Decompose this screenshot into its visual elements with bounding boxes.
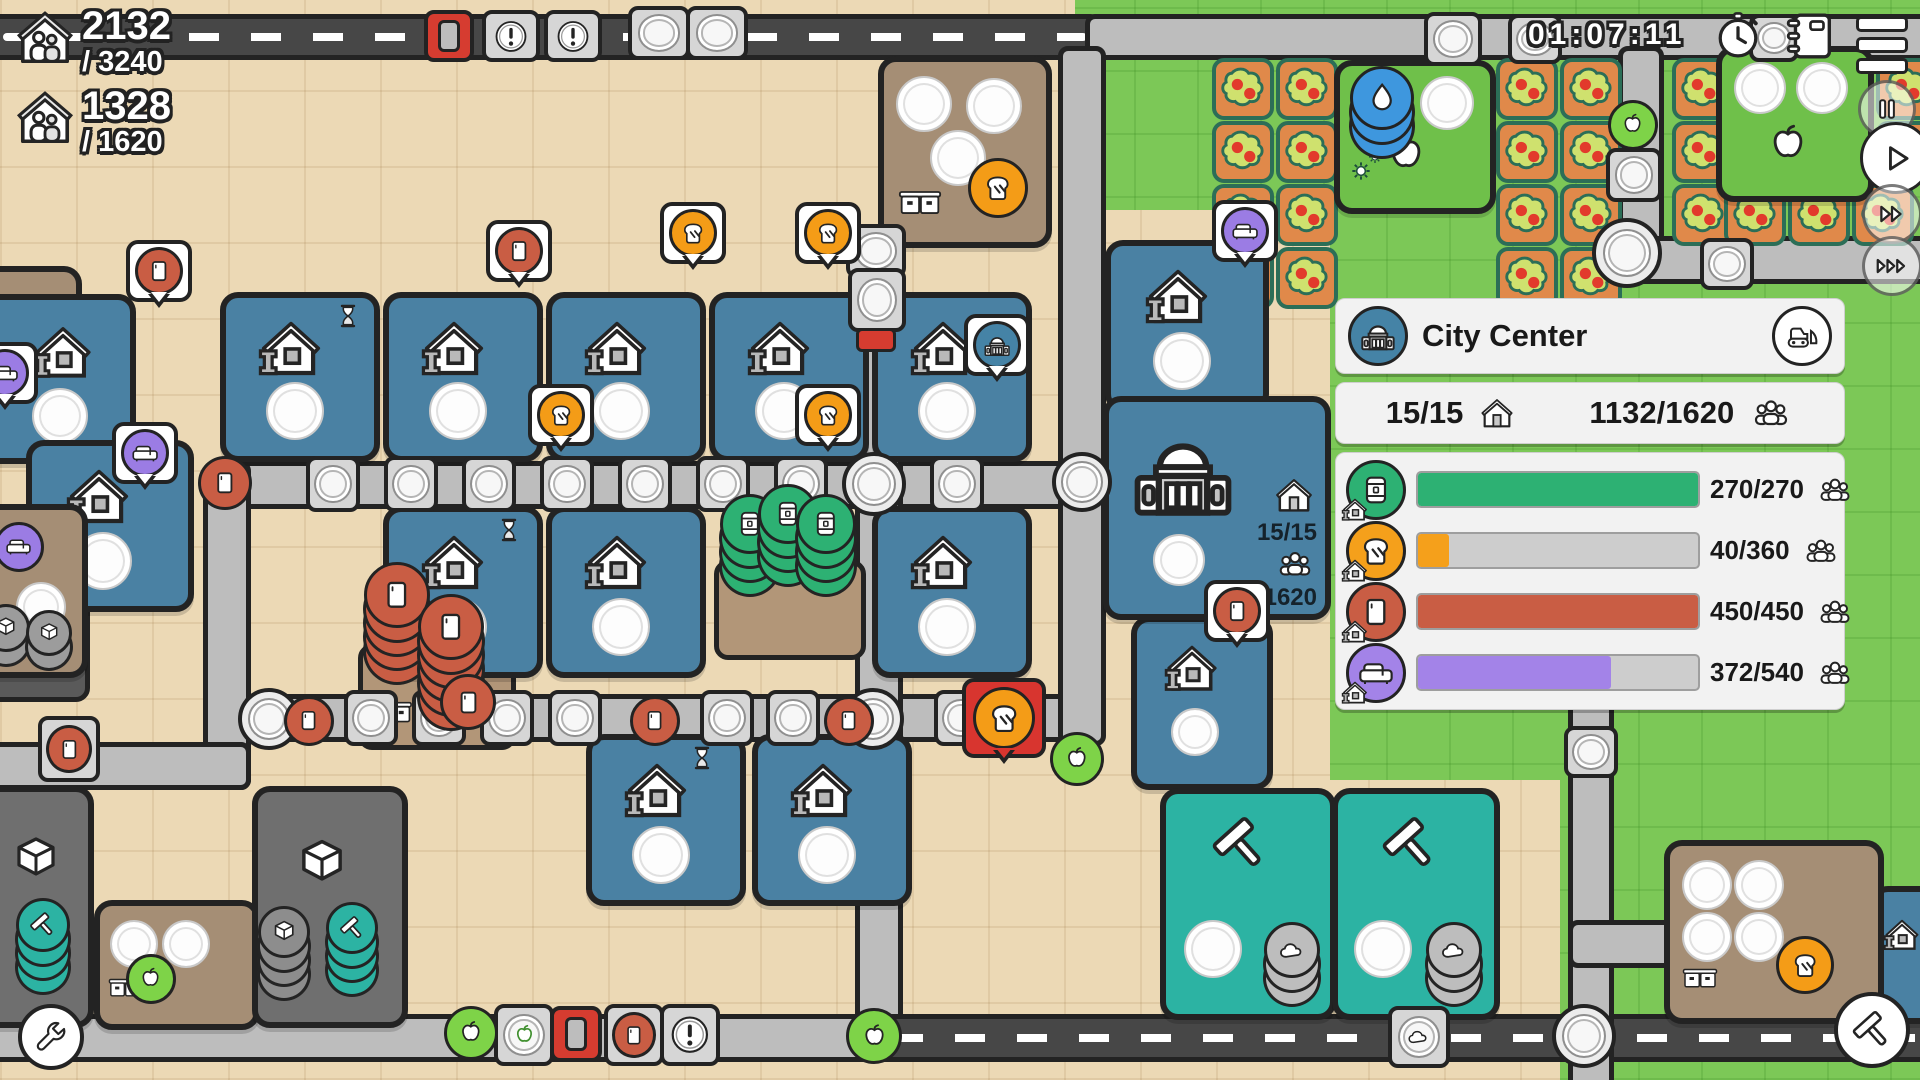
hourglass-icon xyxy=(688,740,716,776)
keg-icon xyxy=(1346,460,1406,520)
hourglass-icon xyxy=(495,512,523,548)
demand-pin-bread[interactable] xyxy=(528,384,594,446)
fast-forward-icon xyxy=(1875,197,1909,231)
hammer-marker[interactable] xyxy=(326,902,378,954)
hammer-icon xyxy=(1848,1006,1896,1054)
demand-pin-bread[interactable] xyxy=(660,202,726,264)
fastest-forward-button[interactable] xyxy=(1862,236,1920,296)
apple-icon xyxy=(1380,128,1432,180)
demolish-button[interactable] xyxy=(1772,306,1832,366)
pause-icon xyxy=(1872,94,1902,124)
population-counter: 2132 / 3240 xyxy=(14,6,171,79)
need-row-bread: 40/360 xyxy=(1346,520,1834,581)
goods-icon xyxy=(620,1021,648,1050)
demand-pin-couch[interactable] xyxy=(0,342,38,404)
house-badge-icon xyxy=(1339,554,1371,586)
need-value: 270/270 xyxy=(1710,474,1804,505)
road-node xyxy=(700,690,754,746)
road-node xyxy=(766,690,820,746)
cont-marker[interactable] xyxy=(630,696,680,746)
residence-icon xyxy=(1139,256,1217,334)
storage-pad[interactable] xyxy=(714,560,866,660)
appleg-marker[interactable] xyxy=(444,1006,498,1060)
hammer-icon xyxy=(1376,810,1444,878)
road-node xyxy=(1052,452,1112,512)
demand-pin-couch[interactable] xyxy=(1212,200,1278,262)
road-node xyxy=(628,6,690,60)
road-node xyxy=(686,6,748,60)
appleg-marker[interactable] xyxy=(1050,732,1104,786)
road-node xyxy=(306,456,360,512)
people-icon xyxy=(1748,393,1794,433)
residence-icon xyxy=(904,522,982,600)
cloud-icon xyxy=(1405,1023,1433,1051)
drop-marker[interactable] xyxy=(1350,66,1414,130)
road-node xyxy=(1592,218,1662,288)
box-marker[interactable] xyxy=(26,610,72,656)
demand-pin-cont[interactable] xyxy=(486,220,552,282)
house-icon xyxy=(1477,393,1517,433)
goods-icon xyxy=(1346,582,1406,642)
road-node xyxy=(540,456,594,512)
panel-needs: 270/270 40/360 450/450 xyxy=(1335,452,1845,710)
journal-button[interactable] xyxy=(1780,6,1838,66)
hammer-icon xyxy=(1206,810,1274,878)
demand-pin-cont[interactable] xyxy=(126,240,192,302)
box-marker[interactable] xyxy=(258,906,310,958)
apple-icon xyxy=(1762,118,1814,170)
road-node xyxy=(1564,726,1618,778)
road-node xyxy=(38,716,100,782)
housing-capacity: / 1620 xyxy=(82,126,171,159)
farm-tile[interactable] xyxy=(1212,58,1274,120)
population-house-icon xyxy=(14,6,76,70)
road-node xyxy=(618,456,672,512)
need-row-goods: 450/450 xyxy=(1346,581,1834,642)
orchard-tile[interactable] xyxy=(1716,46,1874,202)
workshop-tile[interactable] xyxy=(94,900,260,1030)
need-bar xyxy=(1416,593,1700,630)
play-icon xyxy=(1877,139,1915,177)
game-viewport: 15/15 1132/1620 xyxy=(0,0,1920,1080)
farm-tile[interactable] xyxy=(1276,184,1338,246)
house-tile[interactable] xyxy=(586,734,746,906)
residence-icon xyxy=(415,308,493,386)
cont-marker[interactable] xyxy=(198,456,252,510)
residence-icon xyxy=(618,750,696,828)
people-icon xyxy=(1273,545,1317,583)
panel-header: City Center xyxy=(1335,298,1845,374)
need-row-furniture: 372/540 xyxy=(1346,642,1834,703)
road-node xyxy=(424,10,474,62)
bakery-tile[interactable] xyxy=(1664,840,1884,1024)
appleg-marker[interactable] xyxy=(846,1008,902,1064)
road-node xyxy=(384,456,438,512)
houses-count: 15/15 xyxy=(1386,395,1464,431)
road-node xyxy=(1700,238,1754,290)
house-tile[interactable] xyxy=(546,506,706,678)
house-icon xyxy=(1271,472,1317,518)
road-node xyxy=(462,456,516,512)
farm-tile[interactable] xyxy=(1212,121,1274,183)
road-stop xyxy=(856,328,896,352)
road-node xyxy=(848,268,906,332)
builder-tile[interactable] xyxy=(1332,788,1500,1020)
need-row-drinks: 270/270 xyxy=(1346,459,1834,520)
farm-tile[interactable] xyxy=(1276,58,1338,120)
farm-tile[interactable] xyxy=(1496,184,1558,246)
need-bar xyxy=(1416,532,1700,569)
apple-icon xyxy=(511,1021,538,1049)
house-tile[interactable] xyxy=(752,734,912,906)
residence-icon xyxy=(784,750,862,828)
cloud-marker[interactable] xyxy=(1264,922,1320,978)
housing-value: 1328 xyxy=(82,86,171,126)
demand-pin-cont[interactable] xyxy=(1204,580,1270,642)
road-node xyxy=(482,10,540,62)
road-node xyxy=(344,690,398,746)
box-icon xyxy=(290,832,354,896)
farm-tile[interactable] xyxy=(1276,247,1338,309)
people-icon xyxy=(1814,655,1856,691)
road-node xyxy=(1552,1004,1616,1068)
fast-forward-button[interactable] xyxy=(1862,184,1920,244)
farm-tile[interactable] xyxy=(1276,121,1338,183)
residence-icon xyxy=(1159,634,1225,700)
demand-pin-bread[interactable] xyxy=(795,384,861,446)
housing-counter: 1328 / 1620 xyxy=(14,86,171,159)
population-capacity: / 3240 xyxy=(82,46,171,79)
menu-button[interactable] xyxy=(1856,16,1908,74)
road-node xyxy=(842,452,906,516)
people-icon xyxy=(1814,594,1856,630)
house-tile[interactable] xyxy=(383,292,543,462)
builder-tile[interactable] xyxy=(1160,788,1336,1020)
house-badge-icon xyxy=(1339,676,1371,708)
gear-icon xyxy=(1366,148,1384,166)
alert-pin-bread[interactable] xyxy=(962,678,1046,758)
bin-icon xyxy=(898,190,942,216)
bulldozer-icon xyxy=(1782,316,1822,356)
road-node xyxy=(550,1006,602,1062)
road-node xyxy=(660,1004,720,1066)
residence-icon xyxy=(1880,912,1920,956)
settings-button[interactable] xyxy=(18,1004,84,1070)
cont-marker[interactable] xyxy=(418,594,484,660)
population-count: 1132/1620 xyxy=(1589,395,1734,431)
residence-icon xyxy=(578,522,656,600)
bakery-tile[interactable] xyxy=(878,56,1052,248)
need-value: 450/450 xyxy=(1710,596,1804,627)
road xyxy=(203,461,251,790)
road-node xyxy=(604,1004,664,1066)
road-node xyxy=(1388,1006,1450,1068)
appleg-marker[interactable] xyxy=(1608,100,1658,150)
bread-marker[interactable] xyxy=(968,158,1028,218)
cont-marker[interactable] xyxy=(284,696,334,746)
city-center-panel: City Center 15/15 1132/1620 270/270 xyxy=(1335,298,1845,710)
housing-icon xyxy=(14,86,76,150)
city-center-icon xyxy=(1348,306,1408,366)
residence-icon xyxy=(252,308,330,386)
demand-pin-couch[interactable] xyxy=(112,422,178,484)
need-value: 372/540 xyxy=(1710,657,1804,688)
people-icon xyxy=(1800,533,1842,569)
house-tile[interactable] xyxy=(872,506,1032,678)
road-node xyxy=(548,690,602,746)
alert-icon xyxy=(668,1012,712,1057)
people-icon xyxy=(1814,472,1856,508)
residence-icon xyxy=(741,308,819,386)
alert-icon xyxy=(490,18,532,55)
road xyxy=(1058,46,1106,746)
residence-icon xyxy=(578,308,656,386)
cont-marker[interactable] xyxy=(440,674,496,730)
bread-icon xyxy=(1346,521,1406,581)
box-icon xyxy=(6,830,66,890)
cloud-marker[interactable] xyxy=(1426,922,1482,978)
need-bar xyxy=(1416,654,1700,691)
road-node xyxy=(1606,148,1662,202)
cont-marker[interactable] xyxy=(824,696,874,746)
road-node xyxy=(1424,12,1482,66)
need-bar xyxy=(1416,471,1700,508)
bin-icon xyxy=(1682,968,1718,989)
population-value: 2132 xyxy=(82,6,171,46)
demand-pin-bread[interactable] xyxy=(795,202,861,264)
road-node xyxy=(930,456,984,512)
farm-tile[interactable] xyxy=(1496,121,1558,183)
keg-marker[interactable] xyxy=(796,494,856,554)
farm-tile[interactable] xyxy=(1496,58,1558,120)
wrench-icon xyxy=(31,1017,71,1057)
fastest-forward-icon xyxy=(1874,248,1910,284)
alert-icon xyxy=(552,18,594,55)
road-node xyxy=(494,1004,554,1066)
stopwatch-icon xyxy=(1712,10,1764,62)
bread-marker[interactable] xyxy=(1776,936,1834,994)
house-badge-icon xyxy=(1339,615,1371,647)
hammer-marker[interactable] xyxy=(16,898,70,952)
couch-icon xyxy=(1346,643,1406,703)
build-button[interactable] xyxy=(1834,992,1910,1068)
goods-icon xyxy=(55,734,84,765)
appleg-marker[interactable] xyxy=(126,954,176,1004)
game-timer: 01:07:11 xyxy=(1528,18,1686,52)
hourglass-icon xyxy=(334,298,362,334)
panel-stats: 15/15 1132/1620 xyxy=(1335,382,1845,444)
demand-pin-dome[interactable] xyxy=(964,314,1030,376)
panel-title: City Center xyxy=(1422,318,1758,354)
house-badge-icon xyxy=(1339,493,1371,525)
road-node xyxy=(544,10,602,62)
need-value: 40/360 xyxy=(1710,535,1790,566)
house-tile[interactable] xyxy=(1131,616,1273,790)
